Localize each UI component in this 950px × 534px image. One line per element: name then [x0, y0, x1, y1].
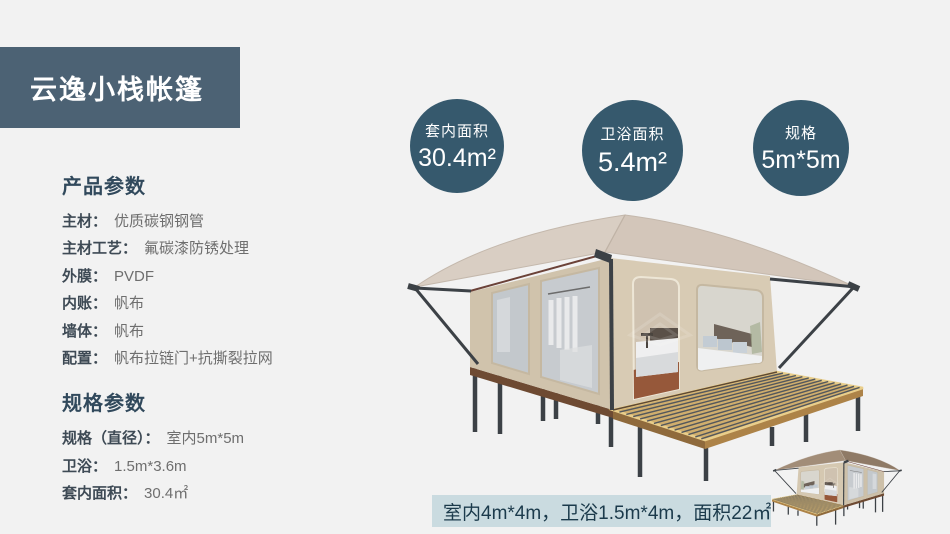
badge-value: 5m*5m	[761, 146, 840, 175]
slide: 云逸小栈帐篷 产品参数 主材：优质碳钢钢管 主材工艺：氟碳漆防锈处理 外膜：PV…	[0, 0, 950, 534]
variant-caption: 室内4m*4m，卫浴1.5m*4m，面积22㎡	[432, 495, 771, 527]
badge-value: 5.4m²	[598, 147, 667, 178]
main-tent-render	[408, 215, 863, 481]
badge-size: 规格 5m*5m	[753, 100, 849, 196]
badge-indoor-area: 套内面积 30.4m²	[410, 99, 504, 193]
tent-illustration	[0, 0, 950, 534]
badge-value: 30.4m²	[418, 144, 496, 173]
badge-label: 卫浴面积	[600, 123, 664, 144]
small-tent-render	[772, 450, 902, 526]
badge-bathroom-area: 卫浴面积 5.4m²	[582, 100, 683, 201]
badge-label: 套内面积	[425, 120, 489, 141]
badge-label: 规格	[785, 122, 817, 143]
variant-caption-text: 室内4m*4m，卫浴1.5m*4m，面积22㎡	[443, 498, 771, 525]
